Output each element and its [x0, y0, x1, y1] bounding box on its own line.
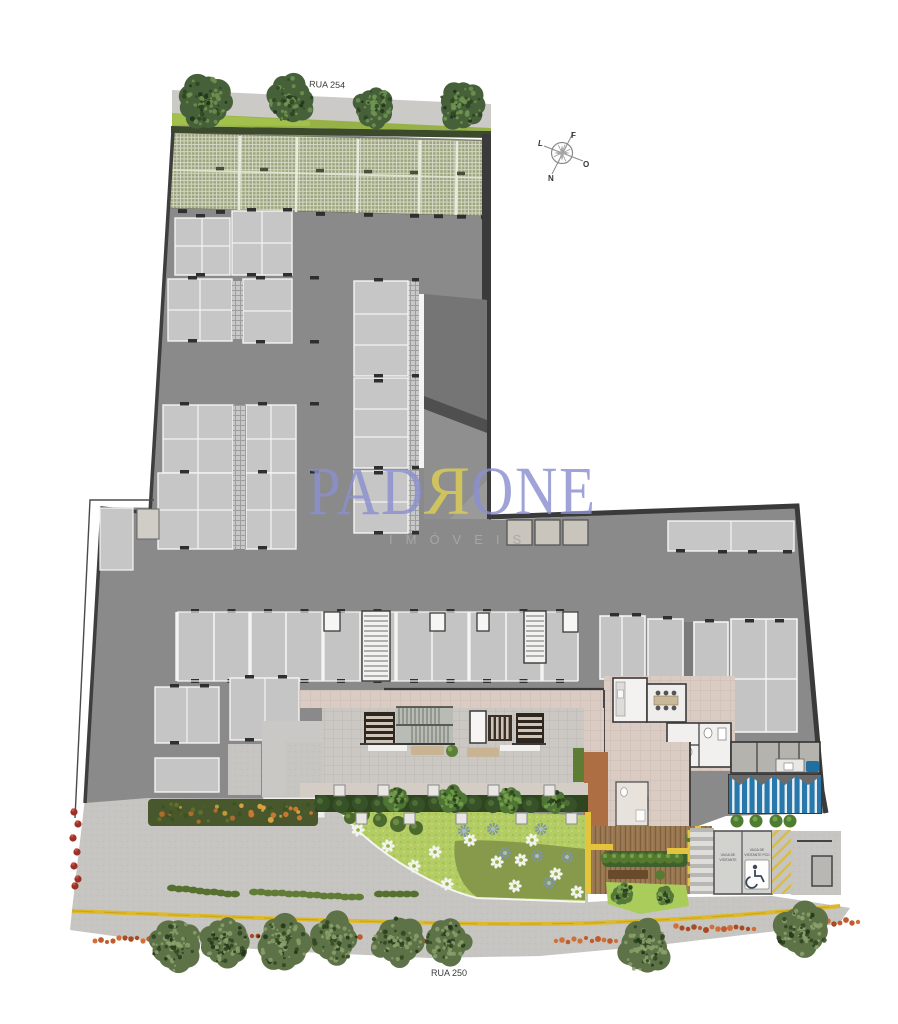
svg-text:R: R	[424, 453, 470, 529]
svg-text:N: N	[548, 174, 554, 183]
svg-text:ONE: ONE	[471, 453, 597, 530]
svg-text:RUA 250: RUA 250	[431, 968, 467, 978]
svg-text:VAGA DE: VAGA DE	[721, 853, 736, 857]
svg-text:VAGA DE: VAGA DE	[750, 848, 765, 852]
svg-text:PAD: PAD	[308, 453, 425, 530]
svg-text:O: O	[583, 160, 589, 169]
svg-text:F: F	[571, 131, 576, 140]
svg-text:L: L	[538, 139, 543, 148]
svg-text:VISITANTE: VISITANTE	[719, 858, 737, 862]
svg-text:IMÓVEIS: IMÓVEIS	[389, 532, 534, 547]
svg-text:VISITANTE PCD: VISITANTE PCD	[744, 853, 770, 857]
svg-text:RUA 254: RUA 254	[309, 79, 345, 90]
